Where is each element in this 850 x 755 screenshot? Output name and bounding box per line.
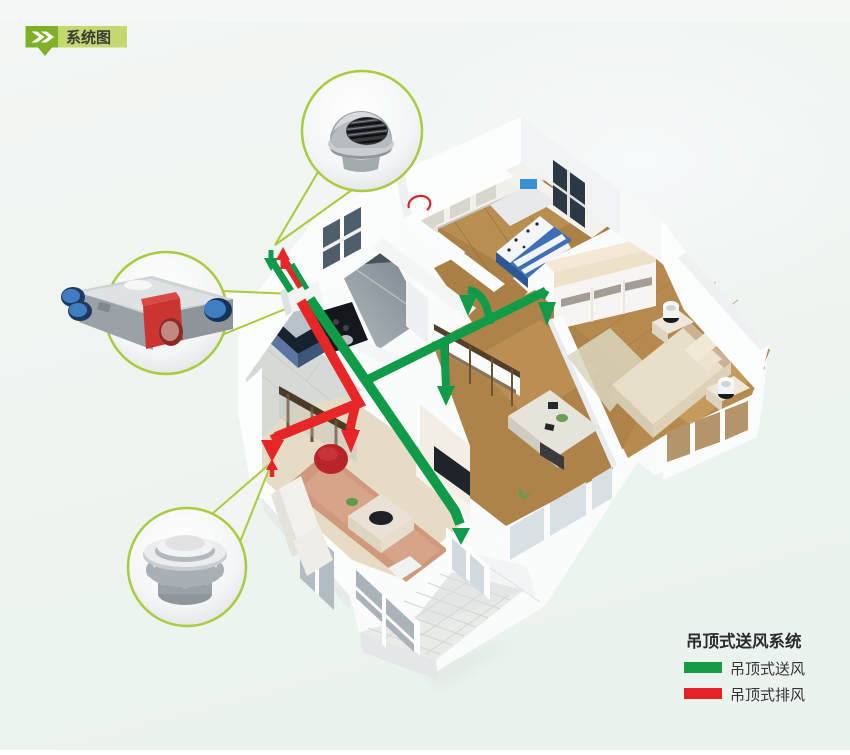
- svg-text:吊顶式排风: 吊顶式排风: [730, 687, 805, 704]
- svg-text:系统图: 系统图: [66, 29, 111, 47]
- svg-text:吊顶式送风系统: 吊顶式送风系统: [686, 631, 802, 651]
- svg-text:吊顶式送风: 吊顶式送风: [730, 661, 805, 678]
